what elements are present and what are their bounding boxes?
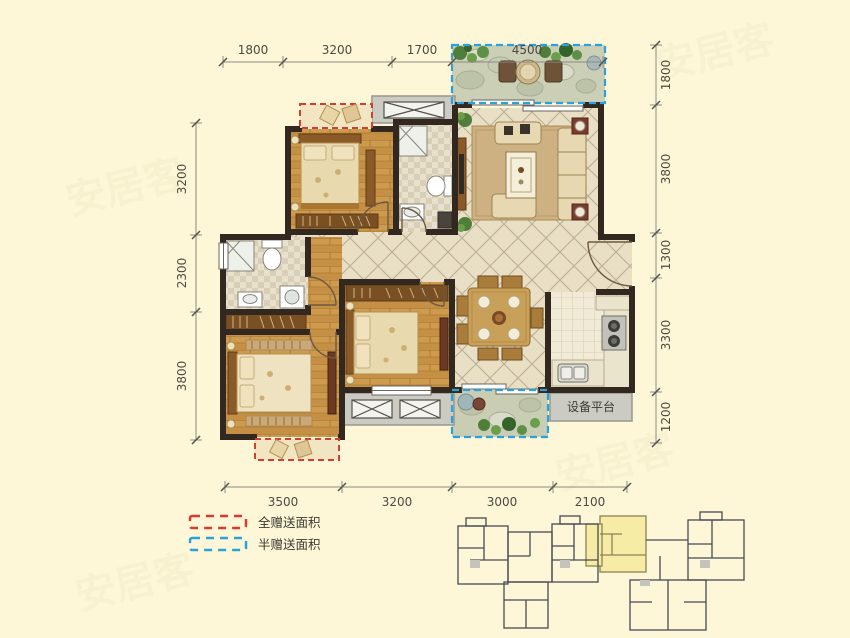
watermark-text: 安居客 bbox=[551, 426, 679, 500]
dim-left-2: 2300 bbox=[175, 258, 189, 289]
rug-fringe bbox=[246, 340, 312, 350]
coffee-table-icon bbox=[506, 152, 536, 198]
equipment-platform-label: 设备平台 bbox=[567, 399, 615, 414]
dim-top-2: 3200 bbox=[322, 43, 353, 57]
dim-right-3: 1300 bbox=[659, 240, 673, 271]
washing-machine-icon bbox=[280, 286, 304, 308]
dim-right-2: 3800 bbox=[659, 154, 673, 185]
dim-right-5: 1200 bbox=[659, 402, 673, 433]
bed-icon bbox=[346, 302, 418, 384]
dim-bottom-1: 3500 bbox=[268, 495, 299, 509]
dim-top-4: 4500 bbox=[512, 43, 543, 57]
dim-top-3: 1700 bbox=[407, 43, 438, 57]
bathroom-second-window bbox=[219, 243, 228, 269]
inner-hall-floor bbox=[308, 237, 342, 332]
dim-left-3: 3800 bbox=[175, 361, 189, 392]
closet-wardrobe bbox=[226, 313, 306, 331]
tv-stand-icon bbox=[328, 352, 336, 414]
bedroom-middle-window bbox=[372, 386, 431, 395]
wardrobe-icon bbox=[346, 285, 448, 301]
dim-right-1: 1800 bbox=[659, 60, 673, 91]
legend-swatch-full-gift bbox=[190, 516, 246, 528]
dim-bottom-2: 3200 bbox=[382, 495, 413, 509]
legend: 全赠送面积 半赠送面积 bbox=[190, 515, 321, 552]
kitchen-sink-icon bbox=[552, 360, 604, 386]
equipment-platform: 设备平台 bbox=[550, 393, 632, 421]
floor-plan-page: 安居客 安居客 安居客 安居客 bbox=[0, 0, 850, 638]
dim-bottom-3: 3000 bbox=[487, 495, 518, 509]
floor-plan-canvas: 安居客 安居客 安居客 安居客 bbox=[0, 0, 850, 638]
toilet-icon bbox=[427, 176, 452, 196]
sink-icon bbox=[238, 292, 262, 307]
legend-label-half-gift: 半赠送面积 bbox=[258, 537, 321, 552]
counter bbox=[596, 296, 630, 310]
living-room-furniture bbox=[457, 112, 588, 232]
legend-label-full-gift: 全赠送面积 bbox=[258, 515, 321, 530]
wardrobe-top-bedroom bbox=[296, 214, 378, 228]
tv-cabinet-icon bbox=[457, 138, 466, 210]
rug-fringe bbox=[246, 416, 312, 426]
toilet-icon bbox=[262, 240, 282, 270]
terrace-table-chairs bbox=[499, 60, 562, 84]
watermark-text: 安居客 bbox=[61, 151, 189, 225]
bottom-garden bbox=[452, 390, 548, 437]
watermark-text: 安居客 bbox=[71, 546, 199, 620]
shaft bbox=[438, 212, 452, 228]
dresser-icon bbox=[440, 318, 448, 370]
dim-right-4: 3300 bbox=[659, 320, 673, 351]
legend-swatch-half-gift bbox=[190, 538, 246, 550]
dimension-right: 1800 3800 1300 3300 1200 bbox=[650, 41, 673, 447]
ac-unit-icon bbox=[384, 102, 444, 118]
dimension-left: 3200 2300 3800 bbox=[175, 119, 202, 444]
stove-icon bbox=[602, 316, 626, 350]
dim-bottom-4: 2100 bbox=[575, 495, 606, 509]
bay-window-top-full-gift bbox=[300, 104, 372, 128]
bay-window-master-full-gift bbox=[255, 439, 339, 460]
dim-left-1: 3200 bbox=[175, 164, 189, 195]
dim-top-1: 1800 bbox=[238, 43, 269, 57]
building-key-plan bbox=[458, 512, 744, 630]
